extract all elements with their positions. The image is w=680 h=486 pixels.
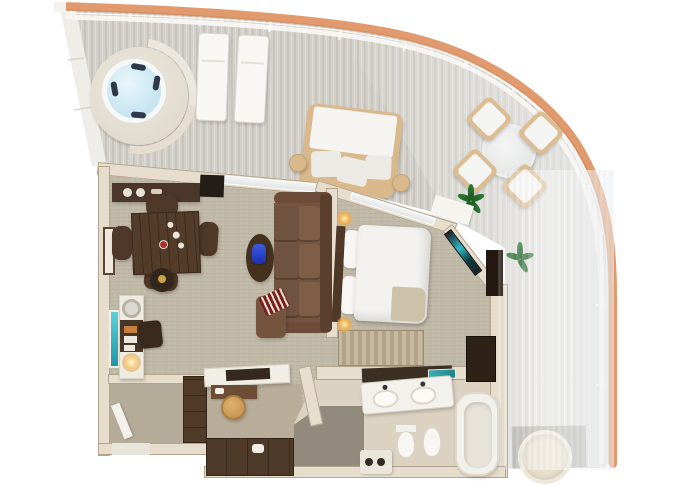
sofa-seat-cushion [274, 206, 299, 242]
round-lounger [518, 430, 572, 484]
plate [123, 188, 132, 197]
hot-tub [102, 59, 166, 123]
sofa-back-cushion [298, 206, 320, 242]
shower-bench [360, 450, 392, 474]
hot-tub-headrest [131, 111, 146, 118]
sofa-back-cushion [298, 282, 320, 318]
sun-lounger [195, 32, 229, 121]
sofa-backrest [320, 194, 332, 332]
wardrobe-bank[interactable] [206, 438, 294, 476]
hall-closet[interactable] [183, 376, 207, 443]
tray [151, 189, 162, 194]
coffee-station [200, 175, 225, 198]
wardrobe[interactable] [466, 336, 496, 382]
side-table [392, 174, 410, 192]
hot-tub-headrest [152, 75, 161, 91]
hot-tub-headrest [110, 81, 119, 97]
toilet-bowl [397, 431, 415, 458]
desk-item [215, 388, 224, 394]
throw-blanket [391, 286, 427, 322]
stool[interactable] [221, 395, 246, 420]
sink [410, 385, 437, 405]
bathtub-basin [464, 402, 492, 468]
dish [167, 222, 173, 228]
dining-chair[interactable] [112, 226, 132, 260]
dish [178, 242, 184, 248]
hot-tub-headrest [131, 63, 147, 72]
bidet [423, 427, 441, 457]
sink [372, 389, 399, 409]
sectional-sofa[interactable] [256, 192, 334, 338]
minibar-item [124, 336, 137, 343]
king-bed[interactable] [339, 224, 432, 324]
minibar-item [124, 326, 137, 333]
wine-stand [150, 268, 174, 292]
bathtub [455, 392, 499, 476]
wine-bottle [158, 275, 166, 283]
dining-table [131, 211, 201, 275]
daybed-cushion [365, 155, 392, 180]
potted-plant [506, 242, 534, 270]
slippers [252, 444, 264, 453]
bar-light [122, 353, 141, 372]
closet-curtain [338, 330, 424, 366]
sofa-seat-cushion [274, 244, 299, 280]
shower-knob[interactable] [377, 458, 385, 466]
bedside-lamp[interactable] [336, 210, 353, 227]
hull-trim-cap [54, 2, 66, 12]
red-plate [159, 240, 168, 249]
shower-knob[interactable] [365, 458, 373, 466]
toilet [395, 424, 417, 458]
sun-lounger [234, 34, 270, 124]
floor-plan-canvas [0, 0, 680, 486]
vanity-tray [226, 368, 271, 381]
bar-sink [122, 299, 141, 318]
side-table [289, 154, 307, 172]
desk-chair[interactable] [138, 320, 164, 349]
minibar-item [124, 345, 135, 351]
plate [136, 188, 145, 197]
dish [173, 232, 180, 239]
entry-threshold[interactable] [112, 443, 150, 455]
media-cabinet [486, 250, 503, 296]
bedside-lamp[interactable] [336, 316, 353, 333]
sofa-back-cushion [298, 244, 320, 280]
